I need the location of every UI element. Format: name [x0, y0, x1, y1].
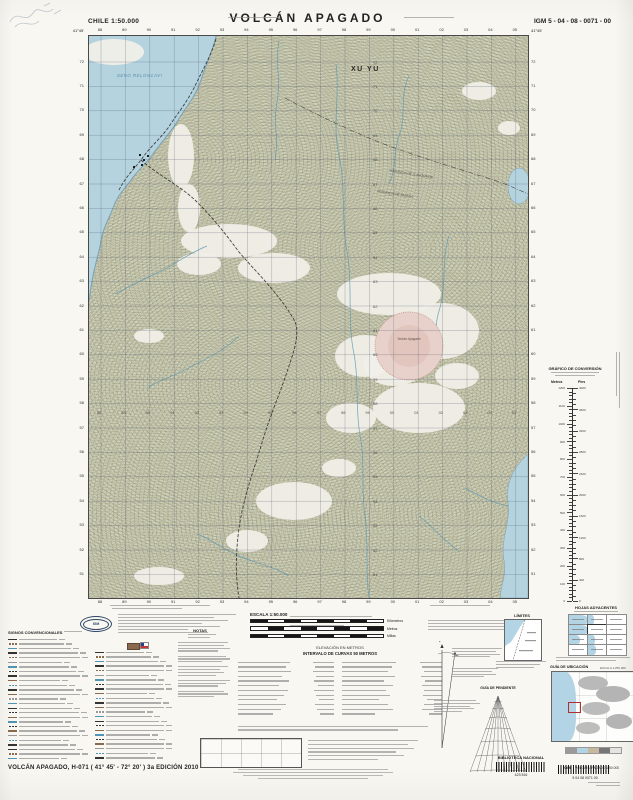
ruler-major-tick — [573, 580, 578, 581]
ruler-minor-tick — [573, 479, 576, 480]
legend-symbol — [8, 689, 17, 690]
ruler-minor-tick — [573, 564, 576, 565]
ruler-minor-tick — [573, 585, 576, 586]
ruler-minor-tick — [569, 544, 572, 545]
grid-label: 92 — [195, 410, 199, 415]
grid-label: 59 — [373, 377, 377, 382]
text-line — [118, 623, 202, 624]
scale-bar-segment — [268, 620, 285, 622]
scale-bar-segment — [334, 620, 351, 622]
legend-symbol — [95, 725, 104, 726]
grid-label: 95 — [265, 27, 277, 32]
ruler-minor-tick — [569, 402, 572, 403]
tech-value — [316, 676, 334, 677]
legend-value — [67, 703, 73, 704]
ruler-minor-tick — [569, 516, 572, 517]
legend-symbol — [95, 670, 104, 671]
tech-label — [342, 685, 393, 686]
location-guide-title: GUÍA DE UBICACIÓN — [550, 665, 588, 669]
grid-label: 58 — [74, 400, 84, 405]
ruler-minor-tick — [569, 523, 572, 524]
margin-note-top-right — [404, 17, 454, 18]
ruler-minor-tick — [573, 447, 576, 448]
legend-label — [106, 734, 150, 735]
legend-label — [19, 749, 75, 750]
text-line — [452, 651, 496, 652]
adjacent-sheets-caption — [556, 657, 632, 663]
grid-label: 55 — [531, 473, 535, 478]
tech-value — [319, 699, 334, 700]
scale-bar-segment — [350, 627, 367, 629]
grid-label: 90 — [146, 410, 150, 415]
scale-bar-segment — [301, 627, 318, 629]
igm-oval-logo: IGM — [80, 616, 112, 632]
grid-label: 94 — [243, 410, 247, 415]
grid-label: 02 — [436, 27, 448, 32]
grid-label: 66 — [531, 205, 535, 210]
sea-label: SENO RELONCAVÍ — [117, 73, 162, 78]
grid-label: 99 — [362, 599, 374, 604]
ruler-minor-tick — [573, 399, 576, 400]
legend-value — [82, 735, 88, 736]
legend-label — [19, 730, 77, 731]
conversion-subtitle — [551, 372, 599, 373]
library-code: 423 516 — [504, 773, 538, 777]
legend-value — [166, 688, 172, 689]
grid-label: 93 — [216, 599, 228, 604]
ruler-label-pies: 0 — [579, 599, 581, 603]
notes-paragraph — [178, 666, 230, 676]
notes-paragraph — [178, 642, 230, 652]
grid-label: 64 — [74, 254, 84, 259]
conversion-subtitle — [555, 375, 595, 376]
grid-label: 89 — [118, 599, 130, 604]
grid-label: 01 — [414, 410, 418, 415]
grid-label: 60 — [531, 351, 535, 356]
grid-label: 05 — [509, 27, 521, 32]
header-sheet-title: VOLCÁN APAGADO — [88, 11, 527, 25]
ruler-minor-tick — [569, 395, 572, 396]
tech-value — [315, 704, 334, 705]
adjacent-sheets-subtitle — [574, 611, 618, 612]
ruler-minor-tick — [569, 484, 572, 485]
ruler-minor-tick — [569, 551, 572, 552]
legend-label — [19, 721, 63, 722]
legend-value — [77, 749, 83, 750]
text-line — [308, 751, 396, 752]
text-line — [178, 642, 228, 643]
scale-bar-row: Millas — [250, 634, 384, 638]
grid-label: 66 — [373, 206, 377, 211]
ruler-minor-tick — [569, 534, 572, 535]
grid-label: 70 — [531, 107, 535, 112]
legend-label — [106, 721, 159, 722]
grid-label: 98 — [338, 27, 350, 32]
ruler-minor-tick — [573, 463, 576, 464]
tech-label — [342, 662, 396, 663]
tech-label — [238, 685, 279, 686]
legend-value — [82, 753, 88, 754]
map-svg — [89, 36, 528, 598]
text-line — [188, 634, 216, 635]
legend-value — [160, 661, 166, 662]
legend-label — [106, 757, 155, 758]
legend-label — [106, 661, 158, 662]
legend-value — [59, 639, 65, 640]
ruler-major-tick — [567, 548, 572, 549]
legend-value — [153, 656, 159, 657]
adjacent-sheet-name — [591, 649, 603, 650]
notes-paragraph — [178, 656, 230, 663]
ruler-minor-tick — [569, 576, 572, 577]
tech-label — [238, 680, 289, 681]
legend-symbol — [8, 648, 17, 649]
slope-guide-title: GUÍA DE PENDIENTE — [462, 686, 534, 690]
scale-bar-segment — [367, 627, 384, 629]
grid-label: 54 — [373, 499, 377, 504]
ruler-label-metros: 600 — [550, 493, 565, 497]
grid-label: 67 — [74, 181, 84, 186]
ruler-label-metros: 0 — [550, 599, 565, 603]
legend-symbol — [95, 734, 104, 735]
right-margin-vertical-note — [616, 352, 620, 408]
legend-symbol — [95, 730, 104, 731]
legend-label — [106, 652, 144, 653]
legend-symbol — [95, 748, 104, 749]
ruler-minor-tick — [573, 505, 576, 506]
ruler-minor-tick — [573, 457, 576, 458]
legend-label — [106, 684, 163, 685]
ruler-minor-tick — [569, 569, 572, 570]
legend-symbol — [95, 679, 104, 680]
legend-label — [19, 671, 76, 672]
tech-extra-lines — [238, 726, 438, 733]
legend-value — [65, 721, 71, 722]
tech-label — [238, 695, 284, 696]
ruler-minor-tick — [569, 455, 572, 456]
ruler-label-pies: 2000 — [579, 493, 586, 497]
grid-label: 91 — [167, 599, 179, 604]
grid-label: 58 — [531, 400, 535, 405]
grid-label: 72 — [531, 59, 535, 64]
adjacent-sheet-cell — [587, 644, 608, 656]
tech-label — [342, 709, 393, 710]
legend-symbol — [95, 757, 104, 758]
text-line — [308, 755, 404, 756]
adjacent-sheet-cell — [568, 644, 589, 656]
scale-bar-segment — [268, 635, 285, 637]
ruler-minor-tick — [573, 500, 576, 501]
grid-label: 90 — [143, 27, 155, 32]
ruler-minor-tick — [573, 510, 576, 511]
grid-label: 59 — [531, 376, 535, 381]
library-barcode — [496, 762, 546, 772]
credit-line — [243, 775, 383, 776]
limits-caption — [496, 661, 548, 670]
location-guide-scale: ESCALA 1:250.000 — [600, 666, 626, 670]
tech-label — [238, 704, 286, 705]
legend-value — [81, 712, 87, 713]
grid-label: 61 — [74, 327, 84, 332]
grid-label: 04 — [484, 599, 496, 604]
grid-label: 05 — [509, 599, 521, 604]
legend-symbol — [95, 693, 104, 694]
grid-label: 89 — [121, 410, 125, 415]
corner-latitude-left: 41°45' — [52, 28, 84, 33]
lake-northeast — [508, 168, 528, 204]
legend-value — [166, 707, 172, 708]
ruler-label-pies: 2800 — [579, 450, 586, 454]
ruler-major-tick — [573, 516, 578, 517]
grid-label: 00 — [387, 599, 399, 604]
text-line — [290, 616, 372, 617]
tech-label — [238, 690, 288, 691]
tech-label — [342, 699, 379, 700]
grid-label: 92 — [192, 599, 204, 604]
ruler-minor-tick — [573, 542, 576, 543]
scale-bar-segment — [284, 627, 301, 629]
legend-row — [8, 756, 88, 761]
igm-footnote — [588, 782, 620, 783]
ruler-minor-tick — [573, 436, 576, 437]
ruler-label-pies: 4000 — [579, 386, 586, 390]
legend-label — [19, 753, 80, 754]
legend-value — [154, 716, 160, 717]
text-line — [118, 626, 220, 627]
legend-symbol — [8, 643, 17, 644]
ruler-major-tick — [567, 495, 572, 496]
legend-symbol — [8, 698, 17, 699]
grid-label: 71 — [531, 83, 535, 88]
ruler-minor-tick — [569, 473, 572, 474]
tech-value — [314, 690, 334, 691]
credit-line — [238, 769, 388, 770]
adjacent-sheets-title: HOJAS ADYACENTES — [564, 605, 628, 610]
grid-label: 67 — [531, 181, 535, 186]
volcano-crater-inner — [388, 325, 430, 367]
legend-symbol — [8, 662, 17, 663]
location-sheet-marker — [568, 702, 581, 713]
grid-label: 97 — [314, 599, 326, 604]
legend-symbol — [8, 671, 17, 672]
tech-label — [342, 695, 390, 696]
legend-label — [19, 657, 80, 658]
ruler-minor-tick — [569, 427, 572, 428]
grid-label: 58 — [373, 401, 377, 406]
ruler-minor-tick — [569, 541, 572, 542]
legend-symbol — [95, 688, 104, 689]
ruler-minor-tick — [569, 416, 572, 417]
legend-value — [166, 665, 172, 666]
legend-value — [152, 734, 158, 735]
legend-symbol — [95, 675, 104, 676]
legend-symbol — [8, 753, 17, 754]
scale-bar-segment — [268, 627, 285, 629]
grid-label: 56 — [373, 450, 377, 455]
ruler-minor-tick — [573, 596, 576, 597]
chile-flag-icon — [140, 642, 149, 649]
text-line — [178, 666, 228, 667]
tech-column-2 — [342, 660, 442, 716]
adjacent-sheet-name — [591, 639, 603, 640]
grid-label: 63 — [74, 278, 84, 283]
ruler-major-tick — [567, 388, 572, 389]
scale-bar-segment — [251, 627, 268, 629]
grid-label: 54 — [531, 498, 535, 503]
ruler-label-metros: 400 — [550, 528, 565, 532]
tech-label — [238, 666, 286, 667]
credits-block — [118, 614, 236, 635]
grid-label: 71 — [373, 84, 377, 89]
legend-symbol — [8, 652, 17, 653]
ruler-major-tick — [567, 459, 572, 460]
legend-title-note — [64, 631, 82, 632]
grid-label: 59 — [74, 376, 84, 381]
ruler-minor-tick — [569, 587, 572, 588]
grid-label: 68 — [74, 156, 84, 161]
text-line — [118, 620, 228, 621]
scale-bar-segment — [317, 635, 334, 637]
legend-label — [106, 693, 147, 694]
color-test-strip — [565, 747, 622, 754]
ruler-minor-tick — [569, 431, 572, 432]
limits-box — [504, 619, 542, 661]
legend-label — [19, 744, 68, 745]
text-line — [452, 671, 492, 672]
legend-value — [151, 675, 157, 676]
grid-label: 65 — [74, 229, 84, 234]
legend-value — [66, 643, 72, 644]
legend-label — [106, 725, 164, 726]
scale-bar-unit: Metros — [387, 627, 397, 629]
ruler-minor-tick — [573, 420, 576, 421]
text-line — [238, 726, 428, 727]
road-sample — [127, 643, 140, 650]
adjacent-sheet-name — [591, 619, 603, 620]
grid-label: 88 — [94, 27, 106, 32]
grid-label: 98 — [341, 410, 345, 415]
ruler-label-pies: 800 — [579, 557, 584, 561]
ruler-minor-tick — [569, 597, 572, 598]
legend-label — [19, 643, 64, 644]
flag-symbol — [127, 642, 149, 649]
tech-row — [342, 712, 442, 717]
legend-symbol — [95, 721, 104, 722]
legend-row — [95, 756, 172, 761]
legend-symbol — [8, 685, 17, 686]
grid-label: 94 — [240, 599, 252, 604]
legend-label — [106, 730, 164, 731]
grid-label: 52 — [531, 547, 535, 552]
legend-label — [106, 711, 145, 712]
scale-bar-row: Metros — [250, 626, 384, 630]
legend-label — [106, 753, 148, 754]
ruler-label-metros: 100 — [550, 582, 565, 586]
grid-label: 63 — [373, 279, 377, 284]
scale-bar-segment — [350, 635, 367, 637]
legend-value — [73, 648, 79, 649]
legend-symbol — [95, 661, 104, 662]
legend-value — [149, 693, 155, 694]
ruler-label-metros: 1100 — [550, 404, 565, 408]
svg-text:*: * — [439, 640, 441, 645]
legend-symbol — [95, 711, 104, 712]
tech-value — [314, 680, 334, 681]
tech-label — [342, 690, 386, 691]
ruler-minor-tick — [569, 487, 572, 488]
ruler-major-tick — [567, 601, 572, 602]
text-line — [496, 667, 534, 668]
grid-label: 05 — [512, 410, 516, 415]
grid-label: 53 — [531, 522, 535, 527]
grid-label: 97 — [314, 27, 326, 32]
grid-label: 04 — [487, 410, 491, 415]
ruler-minor-tick — [573, 548, 576, 549]
adjacent-sheet-name — [591, 629, 603, 630]
ruler-label-metros: 700 — [550, 475, 565, 479]
adjacent-sheet-name — [572, 649, 584, 650]
ruler-minor-tick — [569, 491, 572, 492]
legend-label — [19, 717, 80, 718]
grid-label: 57 — [531, 425, 535, 430]
ruler-minor-tick — [569, 558, 572, 559]
legend-value — [82, 657, 88, 658]
grid-label: 65 — [373, 230, 377, 235]
ruler-label-pies: 1200 — [579, 536, 586, 540]
grid-label: 03 — [460, 27, 472, 32]
legend-label — [19, 698, 58, 699]
adjacent-water — [588, 645, 596, 655]
conversion-ruler: 1200110010009008007006005004003002001000… — [540, 388, 604, 601]
legend-label — [19, 648, 71, 649]
grid-label: 51 — [531, 571, 535, 576]
grid-label: 01 — [411, 599, 423, 604]
legend-label — [19, 758, 59, 759]
ruler-minor-tick — [573, 532, 576, 533]
grid-label: 52 — [74, 547, 84, 552]
white-patches — [134, 82, 520, 585]
ruler-minor-tick — [569, 526, 572, 527]
ruler-major-tick — [567, 406, 572, 407]
ruler-minor-tick — [569, 448, 572, 449]
tech-label — [342, 713, 375, 714]
adjacent-sheet-name — [572, 619, 584, 620]
legend-symbol — [8, 740, 17, 741]
ruler-minor-tick — [569, 392, 572, 393]
tech-column-1 — [238, 660, 334, 716]
legend-symbol — [8, 749, 17, 750]
grid-label: 52 — [373, 548, 377, 553]
text-line — [308, 740, 418, 741]
grid-label: 68 — [373, 157, 377, 162]
legend-label — [106, 748, 164, 749]
grid-label: 98 — [338, 599, 350, 604]
text-line — [308, 748, 414, 749]
legend-value — [82, 694, 88, 695]
tech-value — [320, 713, 334, 714]
legend-symbol — [8, 735, 17, 736]
tech-label — [238, 713, 273, 714]
margin-note-top-left — [228, 17, 280, 18]
ruler-minor-tick — [573, 574, 576, 575]
legend-label — [19, 662, 62, 663]
scale-bar-row: Kilómetros — [250, 619, 384, 623]
scale-bars: KilómetrosMetrosMillas — [250, 619, 425, 641]
scale-title: ESCALA 1:50.000 — [250, 612, 287, 617]
text-line — [178, 658, 230, 659]
grid-label: 99 — [362, 27, 374, 32]
tech-label — [342, 666, 392, 667]
